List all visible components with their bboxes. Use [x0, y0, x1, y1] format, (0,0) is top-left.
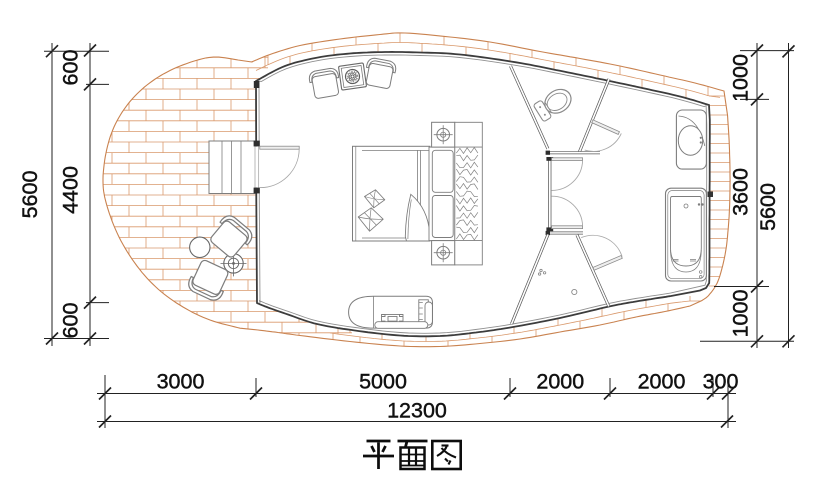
svg-text:5600: 5600: [756, 183, 780, 231]
svg-text:1000: 1000: [729, 54, 753, 102]
svg-text:2000: 2000: [638, 370, 686, 394]
svg-text:600: 600: [59, 50, 83, 86]
svg-text:3600: 3600: [729, 168, 753, 216]
svg-text:5600: 5600: [18, 171, 42, 219]
svg-text:3000: 3000: [157, 370, 205, 394]
svg-text:5000: 5000: [359, 370, 407, 394]
svg-text:300: 300: [703, 370, 739, 394]
svg-text:4400: 4400: [59, 166, 83, 214]
svg-text:2000: 2000: [536, 370, 584, 394]
svg-text:1000: 1000: [729, 290, 753, 338]
svg-text:12300: 12300: [387, 399, 447, 423]
svg-text:600: 600: [59, 303, 83, 339]
